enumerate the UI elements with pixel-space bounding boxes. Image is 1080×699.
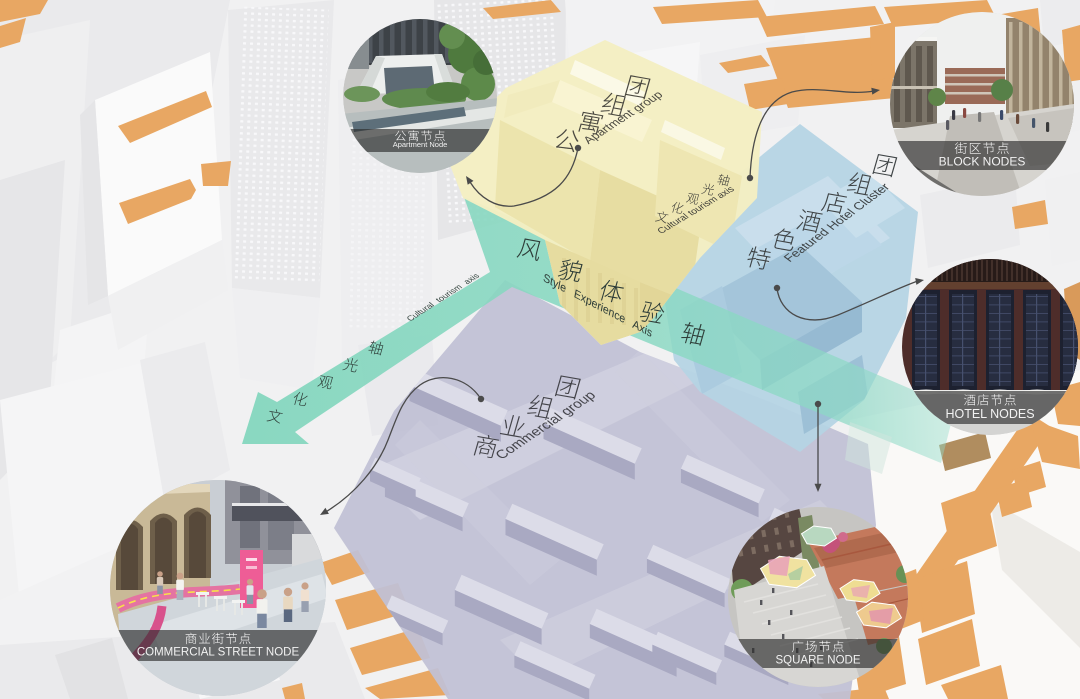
svg-text:Apartment Node: Apartment Node <box>393 140 448 149</box>
svg-text:COMMERCIAL STREET NODE: COMMERCIAL STREET NODE <box>137 646 300 658</box>
svg-text:BLOCK NODES: BLOCK NODES <box>939 155 1026 169</box>
svg-text:HOTEL NODES: HOTEL NODES <box>945 407 1034 421</box>
svg-text:SQUARE NODE: SQUARE NODE <box>776 654 861 666</box>
